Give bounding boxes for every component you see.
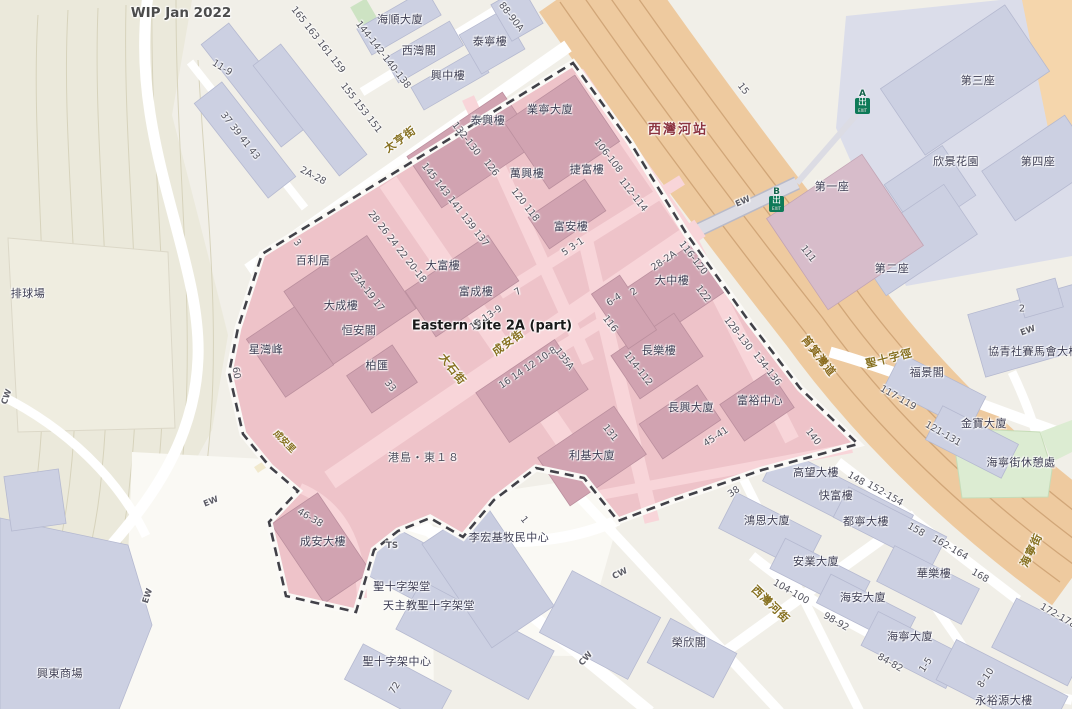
street-tai-shek: 大石街 <box>436 350 471 388</box>
building-label: 大成樓 <box>324 297 359 313</box>
house-number: 88-90A <box>496 0 526 34</box>
house-number: 135A <box>552 346 576 372</box>
building-label: 業寧大廈 <box>527 101 573 117</box>
label-layer: WIP Jan 202211-9165 163 161 159155 153 1… <box>0 0 1072 709</box>
park-label: 海寧街休憩處 <box>987 454 1056 470</box>
building-label: 西灣閣 <box>402 42 437 58</box>
house-number: 28 26 24 22 20-18 <box>366 209 429 285</box>
street-sai-wan-ho: 西灣河街 <box>748 582 794 627</box>
house-number: 168 <box>969 567 990 586</box>
house-number: 116 <box>600 313 620 334</box>
house-number: 46-38 <box>295 506 324 529</box>
building-label: 安業大廈 <box>793 553 839 569</box>
map-canvas[interactable]: WIP Jan 202211-9165 163 161 159155 153 1… <box>0 0 1072 709</box>
building-label: 第一座 <box>815 178 850 194</box>
house-number: 117-119 <box>878 383 918 412</box>
house-number: 128-130 <box>721 315 754 353</box>
house-number: 11-9 <box>210 58 234 79</box>
building-label: 海寧大廈 <box>887 628 933 644</box>
house-number: 114-112 <box>621 350 654 388</box>
house-number: 126 <box>481 157 501 178</box>
house-number: 72 <box>387 680 403 696</box>
house-number: 7 <box>512 286 523 299</box>
house-number: 2 <box>1019 304 1025 315</box>
building-label: 都寧大樓 <box>843 513 889 529</box>
house-number: 162-164 <box>930 533 970 562</box>
path-code-label: CW <box>0 388 14 406</box>
house-number: 15 13-9 <box>468 303 505 333</box>
building-label: 快富樓 <box>819 487 854 503</box>
house-number: 152-154 <box>865 479 905 508</box>
building-label: 李宏基牧民中心 <box>469 529 550 545</box>
house-number: 98-92 <box>821 610 850 633</box>
building-label: 富成樓 <box>459 283 494 299</box>
house-number: 122 <box>693 283 713 304</box>
house-number: 120 118 <box>509 186 542 224</box>
mtr-exit-b-icon: B出EXIT <box>769 188 784 212</box>
house-number: 2A-28 <box>298 165 328 188</box>
house-number: 2 <box>628 286 639 299</box>
path-code-label: EW <box>1019 324 1037 339</box>
building-label: 榮欣閣 <box>672 634 707 650</box>
volleyball-court-label: 排球場 <box>11 285 46 301</box>
house-number: 45-41 <box>701 425 730 450</box>
building-label: 長興大廈 <box>668 399 714 415</box>
house-number: 60 <box>230 366 243 380</box>
building-label: 高望大樓 <box>793 464 839 480</box>
building-label: 泰興樓 <box>471 112 506 128</box>
building-label: 福景閣 <box>910 364 945 380</box>
map-note-wip: WIP Jan 2022 <box>131 5 232 21</box>
building-label: 海安大廈 <box>840 589 886 605</box>
building-label: 萬興樓 <box>510 165 545 181</box>
building-label: 聖十字架中心 <box>363 653 432 669</box>
building-label: 華樂樓 <box>917 565 952 581</box>
path-code-label: CW <box>611 566 629 582</box>
house-number: 134-136 <box>750 350 783 388</box>
house-number: 131 <box>600 422 620 443</box>
house-number: 1 <box>518 514 530 526</box>
site-area-label: Eastern Site 2A (part) <box>412 319 572 334</box>
house-number: 33 <box>382 378 398 394</box>
house-number: 84-82 <box>875 651 904 674</box>
building-label: 大中樓 <box>655 272 690 288</box>
house-number: 132-130 <box>449 120 482 158</box>
house-number: 148 <box>845 470 866 489</box>
building-label: 泰寧樓 <box>473 33 508 49</box>
building-label: 長樂樓 <box>642 342 677 358</box>
house-number: 5 3-1 <box>560 236 587 259</box>
building-label: 成安大樓 <box>300 533 346 549</box>
house-number: 144-142-140-138 <box>353 19 413 91</box>
street-holy-cross-path: 聖十字徑 <box>864 344 914 371</box>
building-label: 金寶大廈 <box>961 415 1007 431</box>
building-label: 富安樓 <box>554 218 589 234</box>
house-number: 38 <box>726 484 742 500</box>
path-code-label: EW <box>141 587 155 605</box>
building-label: 柏匯 <box>366 357 389 373</box>
street-tai-hang: 太亨街 <box>381 122 420 156</box>
street-shing-on-lane: 成安里 <box>271 427 299 455</box>
building-label: 協青社賽馬會大樓 <box>988 343 1072 359</box>
building-label: 百利居 <box>296 252 331 268</box>
station-sai-wan-ho: 西灣河站 <box>648 119 708 138</box>
house-number: 106-108 <box>591 137 624 175</box>
path-code-label: TS <box>386 541 398 551</box>
path-code-label: EW <box>202 495 220 510</box>
house-number: 145 143 141 139 137 <box>419 161 491 249</box>
house-number: 8-10 <box>975 666 996 690</box>
house-number: 155 153 151 <box>338 81 384 135</box>
street-hoi-ning: 海寧街 <box>1016 530 1046 569</box>
building-label: 聖十字架堂 <box>373 578 431 594</box>
development-island-east-18: 港島・東１８ <box>388 449 460 465</box>
house-number: 6-4 <box>604 291 623 309</box>
mtr-exit-a-icon: A出EXIT <box>855 90 870 114</box>
mall-hing-tung-label: 興東商場 <box>37 665 83 681</box>
building-label: 第二座 <box>875 260 910 276</box>
path-code-label: EW <box>734 194 752 209</box>
building-label: 興中樓 <box>431 67 466 83</box>
building-label: 捷富樓 <box>570 161 605 177</box>
house-number: 3 <box>291 237 303 249</box>
building-label: 鴻恩大廈 <box>744 512 790 528</box>
building-label: 恒安閣 <box>342 322 377 338</box>
building-label: 第三座 <box>961 72 996 88</box>
house-number: 140 <box>803 426 823 447</box>
house-number: 16 14 12 10-8 <box>497 345 559 392</box>
house-number: 121-131 <box>923 419 963 448</box>
building-label: 利基大廈 <box>569 447 615 463</box>
building-label: 天主教聖十字架堂 <box>383 597 475 613</box>
house-number: 111 <box>798 243 818 264</box>
building-label: 第四座 <box>1021 153 1056 169</box>
building-label: 欣景花園 <box>933 153 979 169</box>
house-number: 116-120 <box>676 239 709 277</box>
house-number: 15 <box>735 81 751 97</box>
house-number: 172-178 <box>1038 601 1072 630</box>
house-number: 1-5 <box>917 655 935 674</box>
house-number: 104-100 <box>771 577 811 606</box>
building-label: 富裕中心 <box>737 392 783 408</box>
house-number: 158 <box>905 521 926 540</box>
building-label: 永裕源大樓 <box>975 692 1033 708</box>
building-label: 海順大廈 <box>377 11 423 27</box>
building-label: 大富樓 <box>426 257 461 273</box>
house-number: 165 163 161 159 <box>289 4 348 75</box>
house-number: 23A-19 17 <box>348 268 387 313</box>
street-shau-kei-wan-road: 筲箕灣道 <box>798 332 840 380</box>
house-number: 37 39 41 43 <box>218 110 262 162</box>
house-number: 28-2A <box>649 249 678 274</box>
street-shing-on: 成安街 <box>489 325 528 359</box>
building-label: 星灣峰 <box>249 341 284 357</box>
path-code-label: CW <box>577 650 595 668</box>
house-number: 112-114 <box>616 176 649 214</box>
